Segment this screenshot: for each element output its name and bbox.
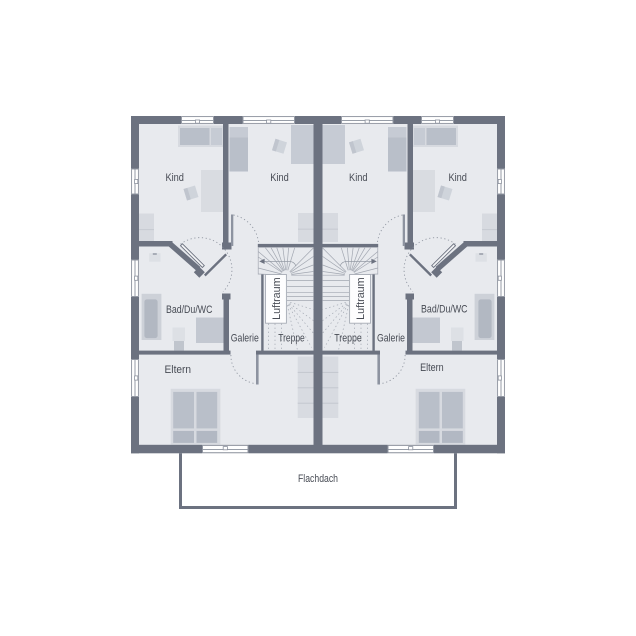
- svg-text:Luftraum: Luftraum: [355, 277, 367, 320]
- svg-text:Treppe: Treppe: [278, 333, 305, 345]
- svg-text:Eltern: Eltern: [420, 362, 444, 374]
- svg-text:Kind: Kind: [165, 172, 184, 184]
- svg-text:Luftraum: Luftraum: [271, 277, 283, 320]
- svg-text:Eltern: Eltern: [165, 364, 192, 376]
- svg-text:Kind: Kind: [270, 172, 289, 184]
- svg-text:Treppe: Treppe: [334, 333, 362, 345]
- svg-text:Bad/Du/WC: Bad/Du/WC: [421, 304, 468, 316]
- svg-text:Kind: Kind: [349, 172, 368, 184]
- svg-text:Flachdach: Flachdach: [298, 473, 338, 485]
- svg-text:Galerie: Galerie: [377, 332, 405, 344]
- svg-text:Bad/Du/WC: Bad/Du/WC: [166, 304, 213, 316]
- svg-text:Kind: Kind: [448, 172, 467, 184]
- svg-text:Galerie: Galerie: [231, 332, 259, 344]
